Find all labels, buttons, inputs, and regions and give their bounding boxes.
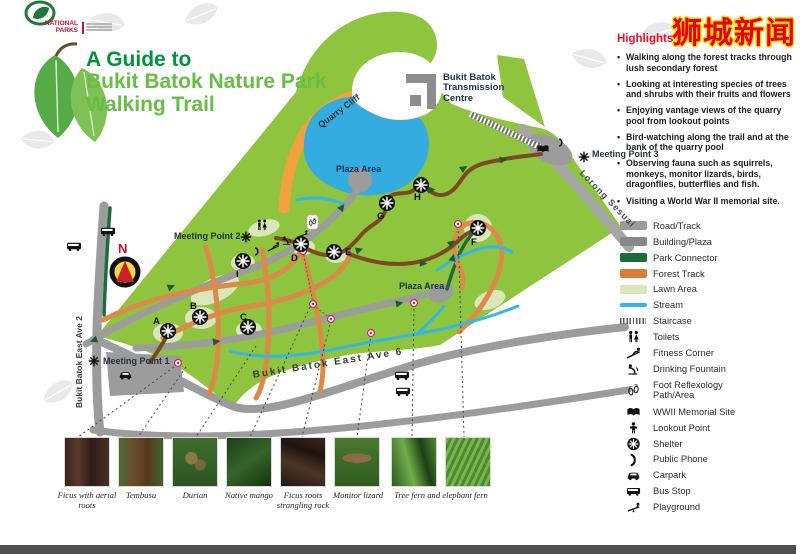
marker-letter-B: B — [190, 301, 197, 312]
title-line1: A Guide to — [86, 49, 326, 71]
highlight-item: •Looking at interesting species of trees… — [617, 79, 799, 100]
shelter-E — [326, 244, 342, 260]
staircase-swatch — [620, 318, 646, 324]
shelter-A — [160, 323, 176, 339]
highlights-panel: Highlights •Walking along the forest tra… — [617, 33, 799, 212]
photo-tembusu — [118, 437, 164, 487]
meeting-point-3-label: Meeting Point 3 — [592, 149, 659, 159]
public-phone-icon — [626, 453, 641, 467]
foot-reflexology-icon — [626, 383, 641, 397]
shelter-F — [470, 220, 486, 236]
caption-ficus-roots-rock: Ficus roots strangling rock — [274, 491, 332, 510]
highlight-item: •Visiting a World War II memorial site. — [617, 196, 799, 207]
marker-letter-I: I — [236, 269, 239, 280]
highlight-item: •Walking along the forest tracks through… — [617, 52, 799, 73]
title-line3: Walking Trail — [86, 94, 326, 116]
forest-track-swatch — [620, 269, 647, 278]
fitness-corner-icon — [626, 346, 641, 360]
shelter-I — [235, 253, 251, 269]
carpark-icon — [626, 468, 641, 482]
legend-item-toilets: Toilets — [613, 329, 799, 345]
highlight-item: •Observing fauna such as squirrels, monk… — [617, 158, 799, 190]
shelter-icon — [626, 437, 641, 451]
photo-monitor-lizard — [334, 437, 380, 487]
photo-durian — [172, 437, 218, 487]
legend-item-carpark: Carpark — [613, 467, 799, 483]
page-title: A Guide to Bukit Batok Nature Park Walki… — [86, 49, 326, 116]
park-connector-swatch — [620, 253, 647, 262]
highlights-heading: Highlights — [617, 33, 799, 45]
legend-item-building: Building/Plaza — [613, 234, 799, 250]
nparks-logo: NATIONAL PARKS — [16, 3, 146, 35]
photo-elephant-fern — [445, 437, 491, 487]
caption-tree-elephant-fern: Tree fern and elephant fern — [385, 491, 497, 501]
title-line2: Bukit Batok Nature Park — [86, 71, 326, 93]
meeting-point-2-label: Meeting Point 2 — [174, 231, 241, 241]
legend-item-forest-track: Forest Track — [613, 266, 799, 282]
east-plaza-label: Plaza Area — [399, 281, 444, 291]
logo-divider — [82, 22, 84, 34]
caption-monitor-lizard: Monitor lizard — [330, 491, 386, 501]
legend-item-park-connector: Park Connector — [613, 250, 799, 266]
highlight-item: •Enjoying vantage views of the quarry po… — [617, 105, 799, 126]
legend-item-shelter: Shelter — [613, 436, 799, 452]
compass-north-label: N — [118, 241, 127, 256]
photo-ficus-aerial-roots — [64, 437, 110, 487]
pool-plaza-label: Plaza Area — [336, 164, 381, 174]
legend-item-fountain: Drinking Fountain — [613, 361, 799, 377]
meeting-point-1-label: Meeting Point 1 — [103, 356, 170, 366]
stream-swatch — [620, 303, 647, 307]
bus-stop-icon-4 — [396, 388, 410, 396]
legend-item-stream: Stream — [613, 297, 799, 313]
legend-item-fitness: Fitness Corner — [613, 345, 799, 361]
legend-item-foot-reflexology: Foot Reflexology Path/Area — [613, 377, 799, 404]
photo-tree-fern — [391, 437, 437, 487]
caption-tembusu: Tembusu — [112, 491, 170, 501]
photo-ficus-roots-rock — [280, 437, 326, 487]
photo-native-mango — [226, 437, 272, 487]
logo-line2: PARKS — [56, 27, 78, 34]
shelter-G — [379, 195, 395, 211]
lawn-swatch — [620, 285, 647, 294]
caption-durian: Durian — [166, 491, 224, 501]
playground-icon — [626, 500, 641, 514]
legend-item-road: Road/Track — [613, 218, 799, 234]
lookout-point-icon — [626, 421, 641, 435]
shelter-D — [293, 236, 309, 252]
marker-letter-F: F — [471, 237, 477, 248]
ave2-road-label: Bukit Batok East Ave 2 — [74, 316, 84, 408]
marker-letter-A: A — [153, 316, 160, 327]
caption-native-mango: Native mango — [218, 491, 280, 501]
marker-letter-G: G — [377, 211, 384, 222]
legend-item-playground: Playground — [613, 499, 799, 515]
meeting-point-1-shelter-icon — [89, 356, 98, 365]
legend-item-wwii: WWII Memorial Site — [613, 404, 799, 420]
compass — [112, 259, 138, 285]
bus-stop-icon-3 — [395, 372, 409, 380]
marker-letter-E: E — [345, 247, 351, 258]
wwii-memorial-icon — [626, 405, 641, 419]
meeting-point-3-shelter-icon — [579, 152, 588, 161]
toilets-icon — [626, 330, 641, 344]
park-guide-poster: NATIONAL PARKS A Guide to Bukit Batok Na… — [0, 0, 800, 554]
bus-stop-icon — [626, 484, 641, 498]
legend-item-lookout: Lookout Point — [613, 420, 799, 436]
bottom-bar — [0, 545, 796, 554]
marker-letter-D: D — [291, 253, 298, 264]
foot-reflexology-icon — [307, 215, 318, 229]
legend-item-staircase: Staircase — [613, 313, 799, 329]
caption-ficus-aerial-roots: Ficus with aerial roots — [56, 491, 118, 510]
meeting-point-2-shelter-icon — [241, 232, 250, 241]
transmission-label-3: Centre — [443, 93, 473, 104]
marker-letter-C: C — [240, 312, 247, 323]
bus-stop-icon-1 — [67, 243, 81, 251]
map-legend: Road/Track Building/Plaza Park Connector… — [613, 218, 799, 515]
legend-item-lawn: Lawn Area — [613, 282, 799, 298]
road-outer — [93, 390, 628, 436]
shelter-H — [413, 177, 429, 193]
marker-letter-H: H — [414, 192, 421, 203]
drinking-fountain-icon — [626, 362, 641, 376]
building-swatch — [620, 237, 647, 246]
legend-item-phone: Public Phone — [613, 452, 799, 468]
legend-item-bus: Bus Stop — [613, 483, 799, 499]
logo-tagline-lines — [86, 23, 112, 33]
